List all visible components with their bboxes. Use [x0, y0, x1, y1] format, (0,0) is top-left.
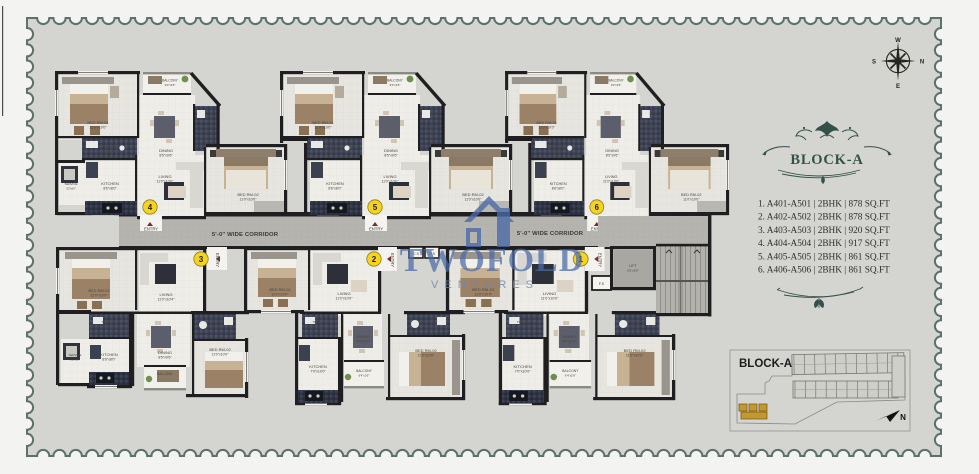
- svg-text:BED RM-02: BED RM-02: [681, 192, 702, 197]
- svg-text:2. A402-A502 | 2BHK | 878 SQ.F: 2. A402-A502 | 2BHK | 878 SQ.FT: [758, 213, 890, 223]
- svg-text:8'5"x9'6": 8'5"x9'6": [159, 154, 173, 158]
- svg-text:KITCHEN: KITCHEN: [550, 181, 567, 186]
- svg-text:BED RM-01: BED RM-01: [269, 287, 291, 292]
- svg-text:4'0"x8'0": 4'0"x8'0": [426, 129, 436, 133]
- svg-text:TWOFOLD: TWOFOLD: [400, 242, 585, 279]
- svg-text:12'0"x10'0": 12'0"x10'0": [538, 126, 555, 130]
- svg-text:LIVING: LIVING: [337, 291, 350, 296]
- svg-text:BED RM-02: BED RM-02: [462, 192, 484, 197]
- svg-text:BED RM-02: BED RM-02: [415, 348, 437, 353]
- svg-text:TOILET-02: TOILET-02: [644, 124, 659, 128]
- svg-text:8'6"x8'0": 8'6"x8'0": [103, 187, 117, 191]
- svg-text:11'0"x10'0": 11'0"x10'0": [683, 198, 700, 202]
- svg-text:9'0"x6'9": 9'0"x6'9": [356, 340, 370, 344]
- svg-text:12'0"x10'0": 12'0"x10'0": [89, 126, 107, 130]
- svg-text:W: W: [895, 38, 901, 44]
- svg-text:TOILET-02: TOILET-02: [207, 320, 222, 324]
- svg-text:BED RM-02: BED RM-02: [624, 348, 647, 353]
- svg-text:5'-0" WIDE CORRIDOR: 5'-0" WIDE CORRIDOR: [517, 231, 584, 237]
- svg-text:DINING: DINING: [159, 148, 173, 153]
- svg-text:LIFT: LIFT: [629, 264, 637, 268]
- svg-text:2: 2: [372, 255, 377, 264]
- svg-text:1. A401-A501 | 2BHK | 878 SQ.F: 1. A401-A501 | 2BHK | 878 SQ.FT: [758, 200, 890, 210]
- svg-text:4. A404-A504 | 2BHK | 917 SQ.F: 4. A404-A504 | 2BHK | 917 SQ.FT: [758, 239, 890, 249]
- svg-text:BALCONY: BALCONY: [157, 372, 174, 376]
- svg-text:ENTRY: ENTRY: [215, 253, 220, 267]
- svg-text:ENTRY: ENTRY: [144, 227, 158, 232]
- svg-text:BLOCK-A: BLOCK-A: [739, 358, 792, 370]
- svg-text:11'0"x10'0": 11'0"x10'0": [603, 180, 620, 184]
- svg-text:5'-0" WIDE CORRIDOR: 5'-0" WIDE CORRIDOR: [212, 232, 279, 238]
- svg-text:7'0"x10'0": 7'0"x10'0": [310, 370, 326, 374]
- svg-text:VENTURES: VENTURES: [431, 279, 539, 291]
- svg-text:12'0"x10'0": 12'0"x10'0": [90, 294, 108, 298]
- svg-text:11'0"x10'0": 11'0"x10'0": [240, 198, 258, 202]
- svg-text:KITCHEN: KITCHEN: [514, 364, 532, 369]
- svg-text:DINING: DINING: [158, 350, 172, 355]
- svg-text:TOILET-01: TOILET-01: [326, 145, 341, 149]
- svg-text:SERVICE: SERVICE: [68, 353, 81, 357]
- svg-text:BALCONY: BALCONY: [562, 369, 579, 373]
- svg-text:3: 3: [199, 255, 204, 264]
- svg-text:11'0"x10'0": 11'0"x10'0": [541, 297, 559, 301]
- svg-text:BED RM-01: BED RM-01: [87, 120, 109, 125]
- svg-text:7'0"x4'0": 7'0"x4'0": [210, 325, 220, 329]
- svg-text:12'0"x10'0": 12'0"x10'0": [271, 293, 289, 297]
- svg-text:3'2"x8'0": 3'2"x8'0": [66, 188, 76, 191]
- svg-text:BALCONY: BALCONY: [356, 369, 373, 373]
- svg-text:4: 4: [148, 203, 153, 212]
- svg-text:7'0"x4'0": 7'0"x4'0": [632, 325, 642, 329]
- svg-text:8'6"x8'0": 8'6"x8'0": [102, 358, 116, 362]
- svg-text:SERVICE: SERVICE: [64, 182, 77, 186]
- svg-text:LIVING: LIVING: [383, 174, 396, 179]
- svg-text:11'0"x10'0": 11'0"x10'0": [336, 297, 354, 301]
- svg-text:8'5"x9'6": 8'5"x9'6": [158, 356, 172, 360]
- svg-text:TOILET-01: TOILET-01: [312, 320, 327, 324]
- svg-text:TOILET-02: TOILET-02: [629, 320, 645, 324]
- svg-text:5. A405-A505 | 2BHK | 861 SQ.F: 5. A405-A505 | 2BHK | 861 SQ.FT: [758, 252, 890, 262]
- svg-text:7'0"x4'0": 7'0"x4'0": [423, 325, 433, 329]
- svg-text:S: S: [872, 60, 876, 66]
- svg-text:6'4"x2'6": 6'4"x2'6": [359, 374, 370, 378]
- svg-text:TOILET-01: TOILET-01: [517, 320, 533, 324]
- svg-text:TOILET-01: TOILET-01: [101, 145, 116, 149]
- svg-text:TOILET-02: TOILET-02: [420, 320, 435, 324]
- svg-text:KITCHEN: KITCHEN: [100, 352, 118, 357]
- svg-text:BED RM-02: BED RM-02: [237, 192, 259, 197]
- svg-text:BED RM-01: BED RM-01: [536, 120, 557, 125]
- svg-text:ENTRY: ENTRY: [369, 227, 383, 232]
- svg-text:8'6"x8'0": 8'6"x8'0": [552, 187, 566, 191]
- svg-text:KITCHEN: KITCHEN: [326, 181, 344, 186]
- svg-text:E: E: [896, 84, 900, 90]
- svg-text:ENTRY: ENTRY: [390, 253, 395, 267]
- svg-text:7'0"x4'0": 7'0"x4'0": [315, 325, 325, 329]
- svg-text:BLOCK-A: BLOCK-A: [790, 152, 863, 168]
- svg-text:DINING: DINING: [562, 334, 576, 339]
- svg-text:7'0"x4'4": 7'0"x4'4": [329, 149, 339, 153]
- svg-text:8'6"x8'0": 8'6"x8'0": [328, 187, 342, 191]
- svg-text:7'0"x10'0": 7'0"x10'0": [515, 370, 532, 374]
- svg-text:F.S: F.S: [599, 282, 605, 286]
- svg-text:7'0"x4'4": 7'0"x4'4": [104, 325, 114, 329]
- svg-text:BALCONY: BALCONY: [162, 79, 179, 83]
- svg-text:5: 5: [373, 203, 378, 212]
- svg-text:11'0"x10'0": 11'0"x10'0": [418, 354, 436, 358]
- svg-text:6. A406-A506 | 2BHK | 861 SQ.F: 6. A406-A506 | 2BHK | 861 SQ.FT: [758, 266, 890, 276]
- svg-text:LIVING: LIVING: [605, 174, 618, 179]
- svg-text:BED RM-01: BED RM-01: [312, 120, 334, 125]
- svg-text:11'0"x10'4": 11'0"x10'4": [158, 298, 176, 302]
- svg-text:11'0"x10'0": 11'0"x10'0": [212, 353, 230, 357]
- svg-text:BALCONY: BALCONY: [387, 79, 404, 83]
- svg-text:BED RM-02: BED RM-02: [209, 347, 231, 352]
- svg-text:DINING: DINING: [605, 148, 618, 153]
- svg-text:6'4"x2'6": 6'4"x2'6": [565, 374, 576, 378]
- svg-text:12'0"x10'0": 12'0"x10'0": [474, 293, 493, 297]
- svg-text:11'0"x10'0": 11'0"x10'0": [626, 354, 644, 358]
- svg-text:8'5"x9'6": 8'5"x9'6": [384, 154, 398, 158]
- svg-text:3. A403-A503 | 2BHK | 920 SQ.F: 3. A403-A503 | 2BHK | 920 SQ.FT: [758, 226, 890, 236]
- svg-text:KITCHEN: KITCHEN: [309, 364, 327, 369]
- svg-text:TOILET-02: TOILET-02: [198, 124, 213, 128]
- svg-text:9'0"x3'6": 9'0"x3'6": [390, 83, 401, 87]
- svg-text:BALCONY: BALCONY: [608, 78, 624, 82]
- svg-text:9'0"x3'6": 9'0"x3'6": [611, 83, 621, 87]
- svg-text:DINING: DINING: [356, 334, 370, 339]
- svg-text:BED RM-01: BED RM-01: [88, 288, 110, 293]
- svg-text:9'0"x6'9": 9'0"x6'9": [562, 340, 577, 344]
- svg-text:11'0"x10'0": 11'0"x10'0": [382, 180, 400, 184]
- svg-text:6: 6: [595, 203, 600, 212]
- svg-text:9'0"x3'6": 9'0"x3'6": [165, 83, 176, 87]
- svg-text:6'5"x6'5": 6'5"x6'5": [627, 269, 639, 273]
- svg-text:11'0"x10'0": 11'0"x10'0": [157, 180, 175, 184]
- svg-text:KITCHEN: KITCHEN: [101, 181, 119, 186]
- svg-text:TOILET-01: TOILET-01: [550, 144, 565, 148]
- svg-text:4'0"x8'0": 4'0"x8'0": [646, 129, 656, 133]
- svg-text:4'0"x8'0": 4'0"x8'0": [201, 129, 211, 133]
- svg-text:ENTRY: ENTRY: [597, 253, 602, 267]
- svg-text:N: N: [900, 413, 906, 422]
- svg-text:7'0"x4'4": 7'0"x4'4": [552, 149, 562, 153]
- svg-text:TOILET-01: TOILET-01: [101, 320, 116, 324]
- svg-text:LIVING: LIVING: [158, 174, 171, 179]
- svg-text:3'2"x8'0": 3'2"x8'0": [70, 359, 80, 362]
- svg-text:TOILET-02: TOILET-02: [423, 124, 438, 128]
- svg-text:7'0"x4'0": 7'0"x4'0": [520, 325, 530, 329]
- svg-text:N: N: [920, 60, 924, 66]
- svg-text:11'0"x10'0": 11'0"x10'0": [465, 198, 483, 202]
- svg-text:LIVING: LIVING: [159, 292, 172, 297]
- svg-text:LIVING: LIVING: [543, 291, 557, 296]
- svg-text:7'0"x4'4": 7'0"x4'4": [104, 149, 114, 153]
- svg-text:8'5"x9'6": 8'5"x9'6": [606, 154, 620, 158]
- svg-text:12'0"x10'0": 12'0"x10'0": [314, 126, 332, 130]
- svg-text:DINING: DINING: [384, 148, 398, 153]
